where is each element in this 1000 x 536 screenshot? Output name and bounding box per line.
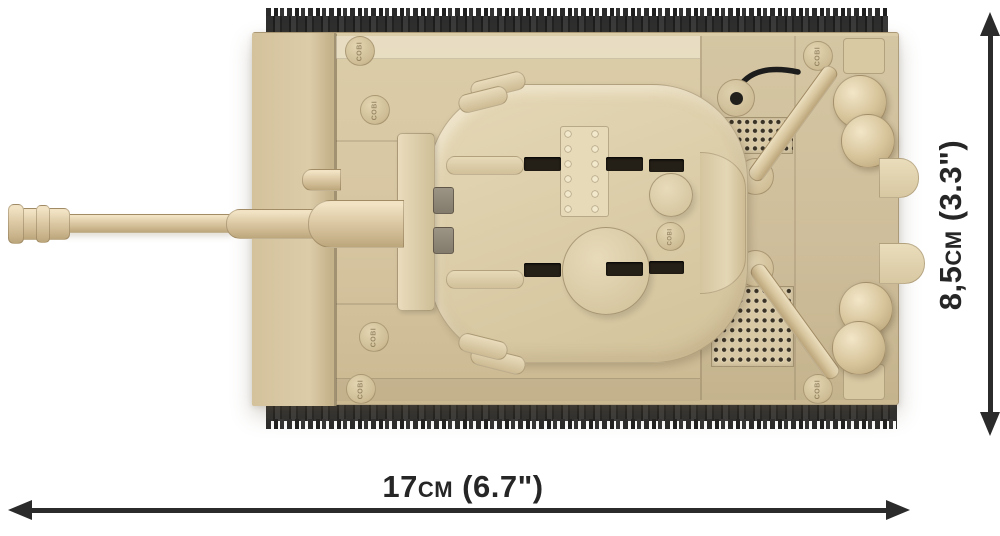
side-rail-bottom [446, 270, 524, 289]
length-arrowhead-right [886, 500, 910, 520]
fender-top [336, 36, 700, 59]
product-dimension-image: COBI COBI COBI COBI COBI COBI [0, 0, 1000, 536]
brand-stud-label: COBI [372, 100, 379, 120]
track-bottom-teeth [266, 419, 897, 429]
round-edge-tile [879, 158, 919, 198]
antenna-socket [730, 92, 743, 105]
rear-bulge [700, 152, 746, 294]
brand-stud: COBI [359, 322, 389, 352]
brand-stud: COBI [360, 95, 390, 125]
width-arrowhead-down [980, 412, 1000, 436]
brand-stud: COBI [345, 36, 375, 66]
spare-drum [832, 321, 886, 375]
gun-barrel-mid [226, 209, 314, 239]
tank-model: COBI COBI COBI COBI COBI COBI [0, 0, 1000, 536]
brand-stud: COBI [346, 374, 376, 404]
periscope-slot [524, 157, 561, 171]
length-arrowhead-left [8, 500, 32, 520]
side-rail-top [446, 156, 524, 175]
mg-peg [302, 169, 341, 191]
periscope-slot [524, 263, 561, 277]
loader-hatch [649, 173, 693, 217]
periscope-slot [606, 262, 643, 276]
brand-stud-label: COBI [815, 379, 822, 399]
gun-barrel-thin [64, 214, 232, 233]
riveted-hatch-plate [560, 126, 609, 217]
width-arrowhead-up [980, 12, 1000, 36]
length-arrow-line [30, 508, 888, 513]
periscope-slot [649, 261, 684, 274]
corner-clamp-top [843, 38, 885, 74]
brand-stud: COBI [656, 222, 685, 251]
brand-stud-label: COBI [371, 327, 378, 347]
width-dimension-label: 8,5cm (3.3") [931, 105, 971, 345]
brand-stud-label: COBI [357, 41, 364, 61]
round-edge-tile [879, 243, 925, 284]
brand-stud-label: COBI [668, 228, 674, 245]
width-arrow-line [988, 34, 993, 414]
periscope-slot [649, 159, 684, 172]
periscope-slot [606, 157, 643, 171]
brand-stud-label: COBI [358, 379, 365, 399]
muzzle-brake-cap [8, 204, 24, 244]
length-dimension-label: 17cm (6.7") [310, 467, 616, 507]
muzzle-brake-ring [36, 205, 50, 243]
antenna-base [717, 79, 755, 117]
brand-stud-label: COBI [815, 46, 822, 66]
connector-pin [433, 187, 454, 214]
fender-bottom [336, 378, 700, 401]
connector-pin [433, 227, 454, 254]
gun-barrel-sleeve [308, 200, 404, 248]
